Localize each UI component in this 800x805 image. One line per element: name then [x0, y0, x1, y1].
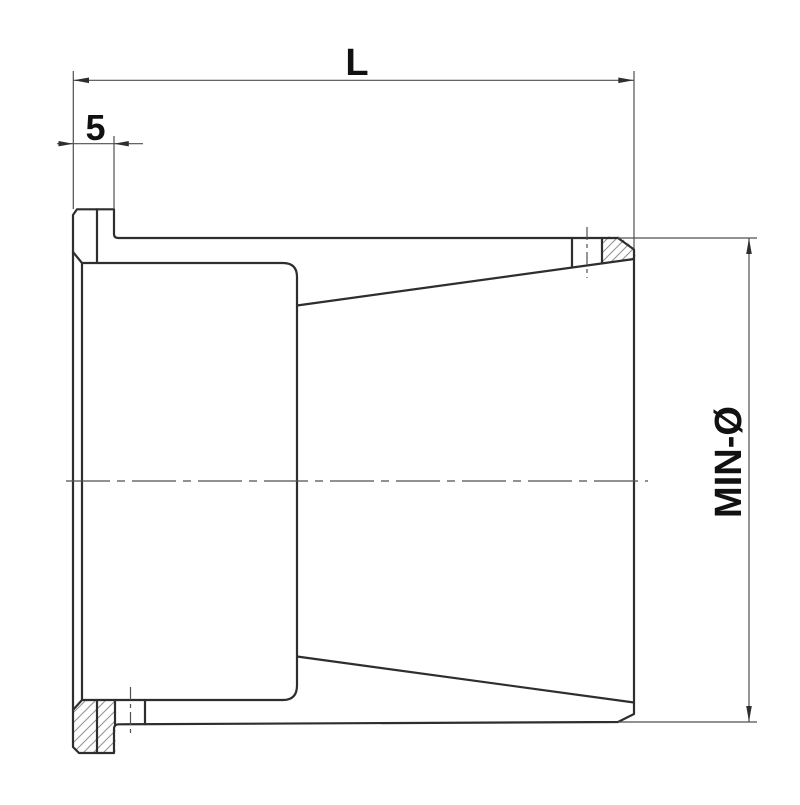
arrowhead-right	[114, 141, 129, 146]
technical-drawing: L 5 MIN-Ø	[0, 0, 800, 800]
dimension-min-diameter-label: MIN-Ø	[708, 406, 750, 518]
cross-hole-bottom-flange	[115, 687, 145, 736]
dimension-length-label: L	[345, 42, 368, 84]
taper-line-top	[297, 259, 634, 306]
hatch-line	[582, 236, 610, 264]
drawing-canvas: L 5 MIN-Ø	[0, 0, 800, 800]
hatch-line	[86, 695, 151, 760]
hatch-line	[56, 695, 121, 760]
arrowhead-bottom	[746, 706, 752, 722]
taper-line-bottom	[297, 657, 634, 703]
dimension-min-diameter: MIN-Ø	[618, 238, 757, 722]
dimension-flange-width-label: 5	[85, 107, 105, 148]
section-hatch-top-right	[582, 236, 655, 264]
arrowhead-left	[74, 78, 90, 84]
hatch-line	[26, 695, 91, 760]
hatch-line	[591, 236, 619, 264]
dimension-length: L	[73, 42, 634, 249]
arrowhead-top	[746, 238, 752, 254]
cross-hole-top-right	[572, 227, 602, 278]
hatch-line	[96, 695, 161, 760]
arrowhead-right	[618, 78, 634, 84]
arrowhead-left	[59, 141, 74, 146]
hatch-line	[36, 695, 101, 760]
hatch-line	[76, 695, 141, 760]
section-hatch-bottom-flange	[26, 695, 171, 760]
dimension-flange-width: 5	[57, 107, 143, 209]
